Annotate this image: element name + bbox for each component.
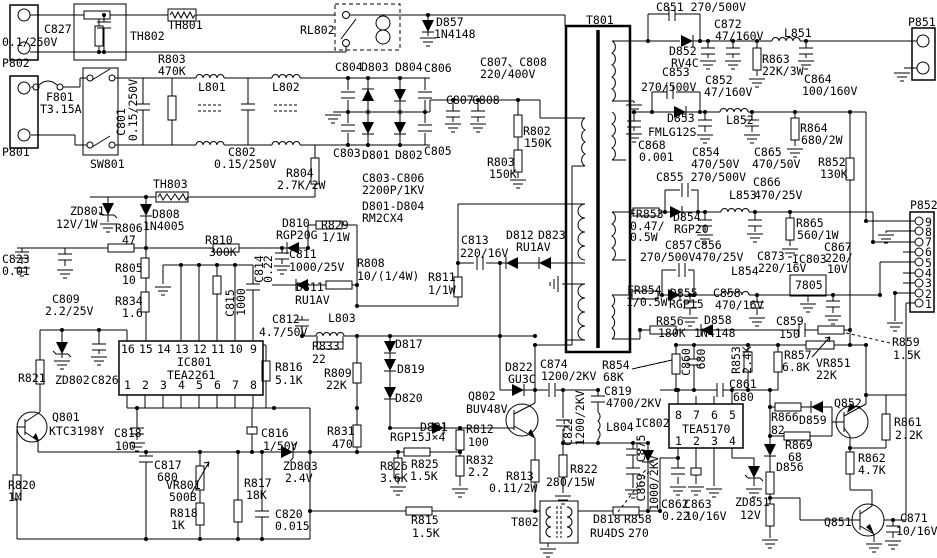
fuse-f801: [39, 81, 57, 85]
junction-dots: [60, 13, 897, 541]
schematic-canvas: P802C8270.1/250VTH802TH801F801T3.15AP801…: [0, 0, 937, 558]
ic803-box: [790, 275, 826, 296]
l804-coil: [598, 412, 600, 439]
connector-p851: [912, 28, 935, 80]
ic801-box: [119, 341, 263, 395]
connector-p801: [10, 76, 38, 148]
transistor-q802: [506, 404, 538, 436]
schematic-drawing: [0, 0, 937, 558]
rl802-box: [335, 4, 400, 50]
ic802-box: [669, 404, 743, 448]
